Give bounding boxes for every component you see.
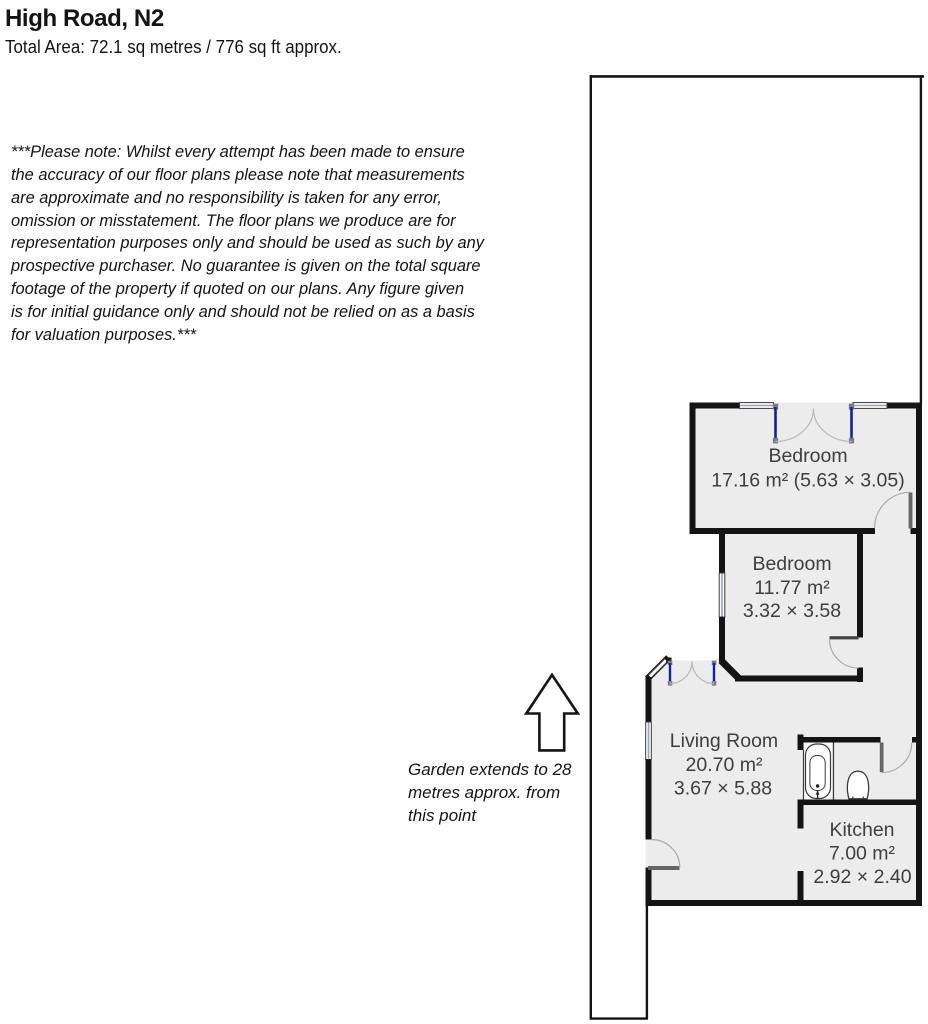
svg-text:Bedroom: Bedroom xyxy=(768,445,847,467)
svg-text:20.70 m²: 20.70 m² xyxy=(686,754,763,776)
svg-text:3.67 × 5.88: 3.67 × 5.88 xyxy=(674,778,772,800)
svg-text:3.32 × 3.58: 3.32 × 3.58 xyxy=(743,600,841,622)
svg-text:17.16 m² (5.63 × 3.05): 17.16 m² (5.63 × 3.05) xyxy=(711,470,905,492)
svg-text:Living Room: Living Room xyxy=(670,730,778,752)
svg-text:2.92 × 2.40: 2.92 × 2.40 xyxy=(813,866,911,888)
svg-text:Bedroom: Bedroom xyxy=(752,553,831,575)
svg-text:7.00 m²: 7.00 m² xyxy=(829,843,896,865)
svg-text:11.77 m²: 11.77 m² xyxy=(754,577,830,599)
svg-text:Kitchen: Kitchen xyxy=(829,819,894,841)
